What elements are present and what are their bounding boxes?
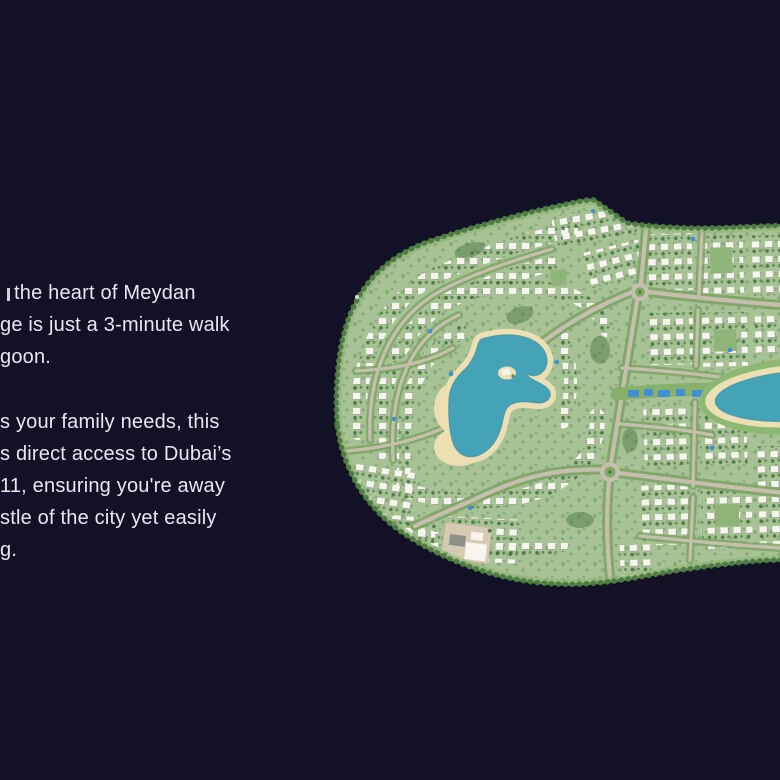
roundabout-south (600, 462, 620, 482)
masterplan-map-image (325, 185, 780, 595)
text-line: g. (0, 534, 280, 566)
text-line-content: stle of the city yet easily (0, 502, 217, 534)
text-line: ge is just a 3-minute walk (0, 309, 280, 341)
text-line: goon. (0, 341, 280, 373)
text-line-content: 11, ensuring you're away (0, 470, 225, 502)
roundabout-north (631, 283, 649, 301)
paragraph-access: s your family needs, this s direct acces… (0, 406, 280, 566)
intro-text-block: the heart of Meydan ge is just a 3-minut… (0, 277, 280, 566)
text-line-content: goon. (0, 341, 51, 373)
masterplan-map-figure (325, 185, 780, 595)
text-line-content: s your family needs, this (0, 406, 220, 438)
lagoon-island (498, 367, 516, 380)
slide-section: the heart of Meydan ge is just a 3-minut… (0, 0, 780, 780)
text-line-content: g. (0, 534, 17, 566)
text-line: s direct access to Dubai’s (0, 438, 280, 470)
text-line-content: ge is just a 3-minute walk (0, 309, 230, 341)
text-line-content: the heart of Meydan (14, 277, 196, 309)
text-line-content: s direct access to Dubai’s (0, 438, 232, 470)
map-marker-speck (355, 295, 359, 299)
text-line: the heart of Meydan (0, 277, 280, 309)
text-line: stle of the city yet easily (0, 502, 280, 534)
paragraph-location: the heart of Meydan ge is just a 3-minut… (0, 277, 280, 373)
text-line: 11, ensuring you're away (0, 470, 280, 502)
clipped-letter-fragment (7, 288, 10, 301)
text-line: s your family needs, this (0, 406, 280, 438)
